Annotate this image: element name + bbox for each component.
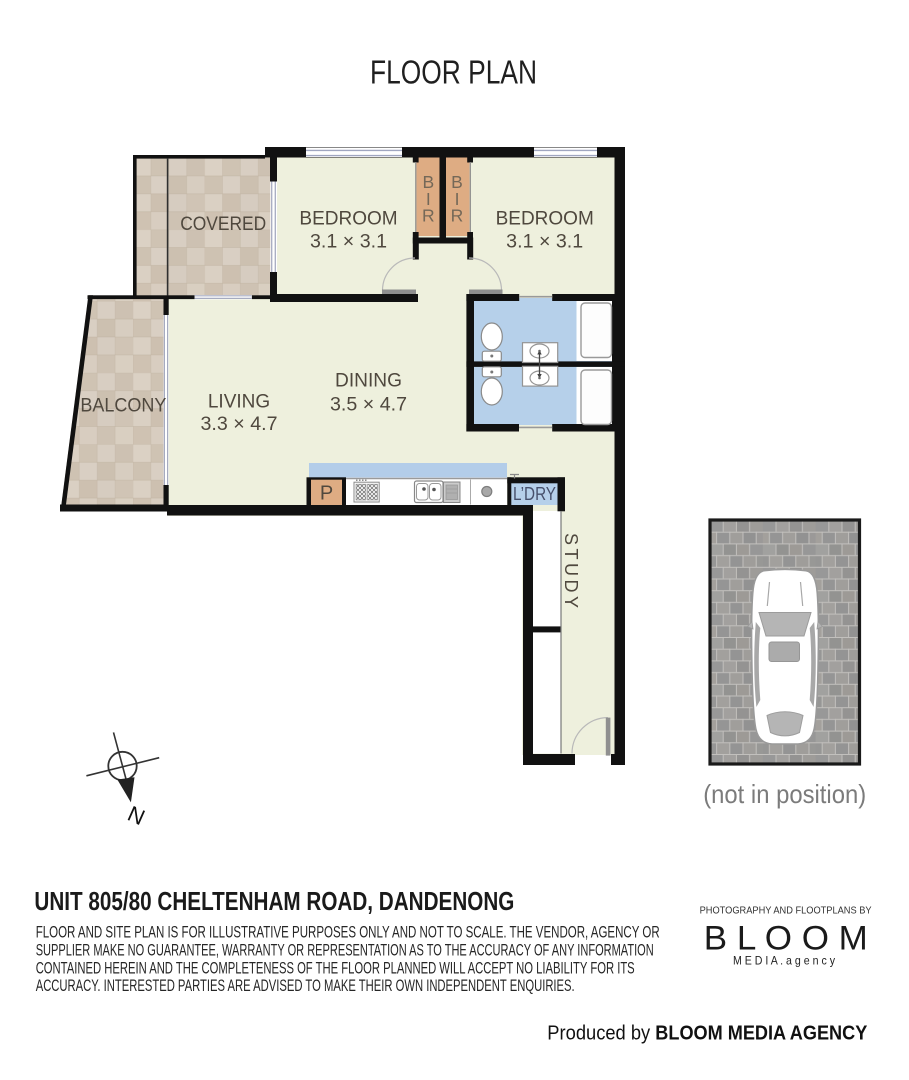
svg-text:3.1 × 3.1: 3.1 × 3.1 [310, 232, 387, 253]
svg-text:M E D I A . a g e n c y: M E D I A . a g e n c y [733, 954, 835, 968]
svg-text:SUPPLIER MAKE NO GUARANTEE, WA: SUPPLIER MAKE NO GUARANTEE, WARRANTY OR … [36, 941, 654, 959]
svg-text:FLOOR PLAN: FLOOR PLAN [370, 54, 537, 91]
svg-text:BEDROOM: BEDROOM [299, 209, 397, 230]
svg-text:P: P [320, 483, 333, 505]
svg-text:R: R [422, 205, 435, 225]
svg-text:COVERED: COVERED [180, 214, 266, 235]
svg-text:ACCURACY. INTERESTED PARTIES A: ACCURACY. INTERESTED PARTIES ARE ADVISED… [36, 977, 575, 995]
svg-text:3.5 × 4.7: 3.5 × 4.7 [330, 395, 407, 416]
svg-text:3.3 × 4.7: 3.3 × 4.7 [201, 414, 278, 435]
svg-text:DINING: DINING [335, 371, 402, 392]
svg-text:PHOTOGRAPHY AND FLOOTPLANS BY: PHOTOGRAPHY AND FLOOTPLANS BY [700, 904, 872, 916]
svg-text:FLOOR AND SITE PLAN IS FOR ILL: FLOOR AND SITE PLAN IS FOR ILLUSTRATIVE … [36, 924, 660, 942]
svg-text:STUDY: STUDY [561, 533, 581, 612]
svg-text:R: R [451, 205, 464, 225]
svg-text:CONTAINED HEREIN AND THE COMPL: CONTAINED HEREIN AND THE COMPLETENESS OF… [36, 959, 635, 977]
svg-text:BEDROOM: BEDROOM [496, 209, 594, 230]
svg-text:B L O O M: B L O O M [704, 920, 868, 958]
svg-text:3.1 × 3.1: 3.1 × 3.1 [506, 232, 583, 253]
svg-text:UNIT 805/80 CHELTENHAM ROAD, D: UNIT 805/80 CHELTENHAM ROAD, DANDENONG [34, 886, 514, 916]
svg-text:BALCONY: BALCONY [80, 396, 166, 417]
svg-text:(not in position): (not in position) [703, 779, 866, 809]
svg-text:L’DRY: L’DRY [513, 484, 556, 504]
svg-text:Produced by BLOOM MEDIA AGENCY: Produced by BLOOM MEDIA AGENCY [547, 1022, 867, 1045]
svg-text:N: N [124, 801, 149, 830]
svg-text:LIVING: LIVING [208, 391, 270, 412]
